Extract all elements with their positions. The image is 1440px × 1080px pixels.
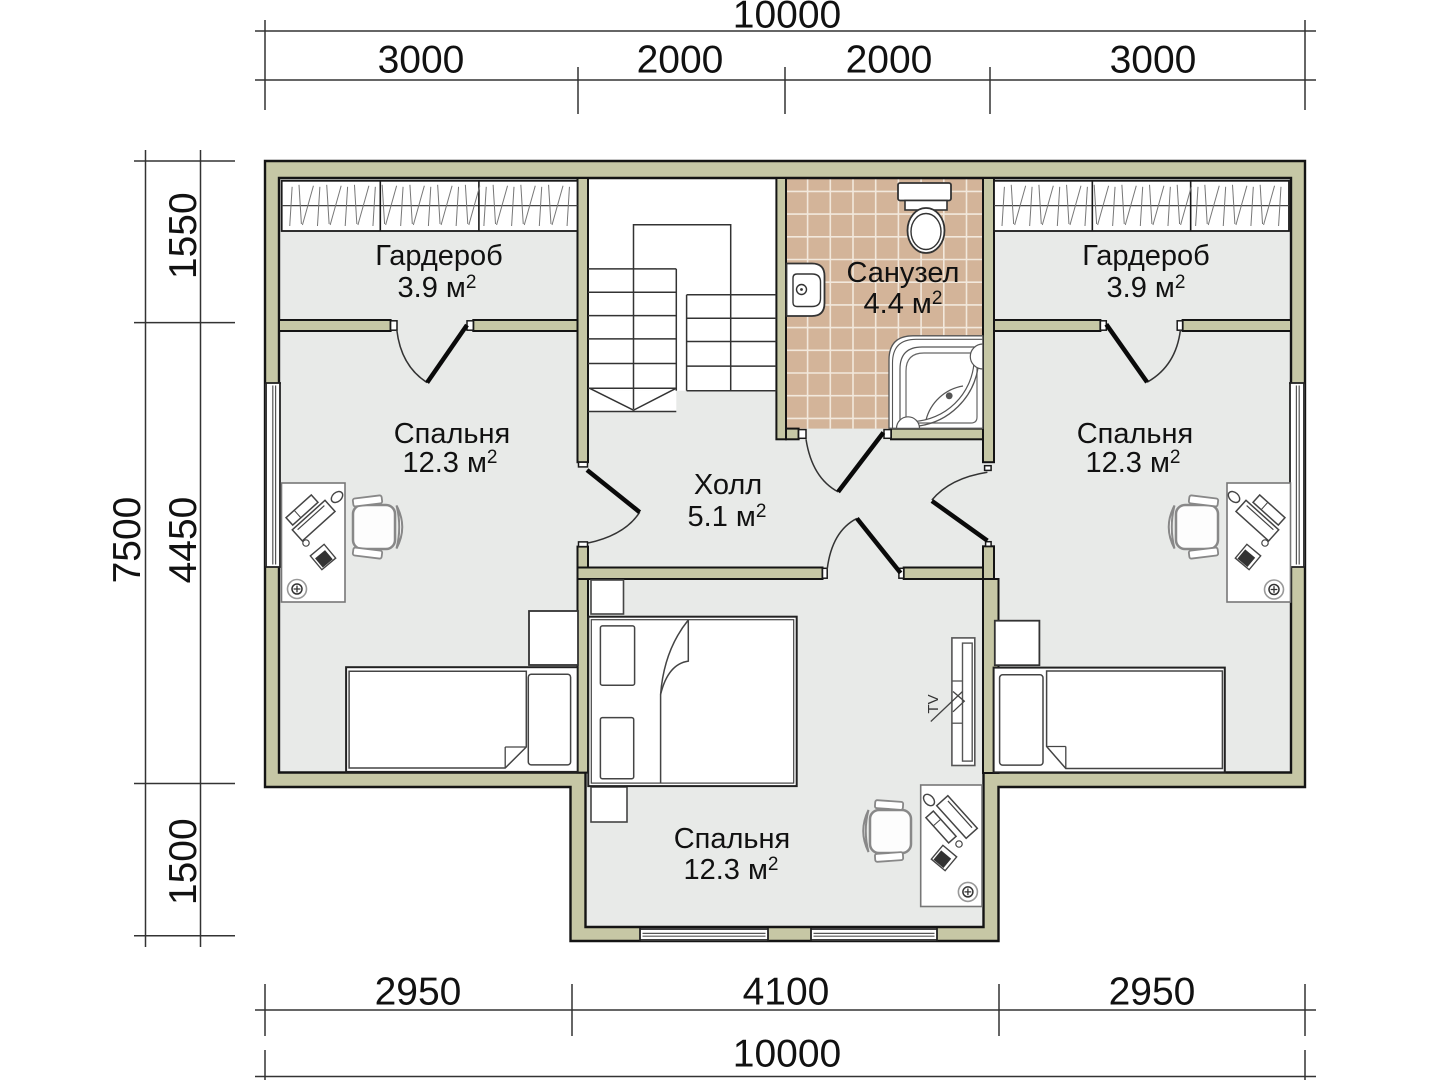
svg-text:3000: 3000 <box>1110 39 1197 82</box>
svg-text:Спальня: Спальня <box>394 418 511 450</box>
svg-text:7500: 7500 <box>106 497 149 584</box>
svg-text:2950: 2950 <box>1109 971 1196 1014</box>
svg-text:1550: 1550 <box>162 192 205 279</box>
svg-text:12.3 м2: 12.3 м2 <box>683 854 778 886</box>
svg-text:Гардероб: Гардероб <box>1082 240 1210 272</box>
svg-text:4450: 4450 <box>162 497 205 584</box>
svg-text:12.3 м2: 12.3 м2 <box>1085 447 1180 479</box>
svg-text:TV: TV <box>925 694 942 713</box>
svg-text:Гардероб: Гардероб <box>375 240 503 272</box>
svg-text:1500: 1500 <box>162 818 205 905</box>
svg-text:3.9 м2: 3.9 м2 <box>398 272 477 304</box>
svg-text:12.3 м2: 12.3 м2 <box>402 447 497 479</box>
svg-text:4.4 м2: 4.4 м2 <box>864 288 943 320</box>
svg-text:5.1 м2: 5.1 м2 <box>688 501 767 533</box>
svg-text:2000: 2000 <box>846 39 933 82</box>
svg-text:3.9 м2: 3.9 м2 <box>1107 272 1186 304</box>
svg-text:3000: 3000 <box>378 39 465 82</box>
svg-text:2950: 2950 <box>375 971 462 1014</box>
svg-text:2000: 2000 <box>637 39 724 82</box>
svg-text:10000: 10000 <box>733 0 841 37</box>
svg-text:Холл: Холл <box>694 469 762 501</box>
svg-text:4100: 4100 <box>743 971 830 1014</box>
svg-text:Спальня: Спальня <box>1077 418 1194 450</box>
svg-text:10000: 10000 <box>733 1033 841 1076</box>
svg-text:Спальня: Спальня <box>674 823 791 855</box>
svg-text:Санузел: Санузел <box>847 257 960 289</box>
